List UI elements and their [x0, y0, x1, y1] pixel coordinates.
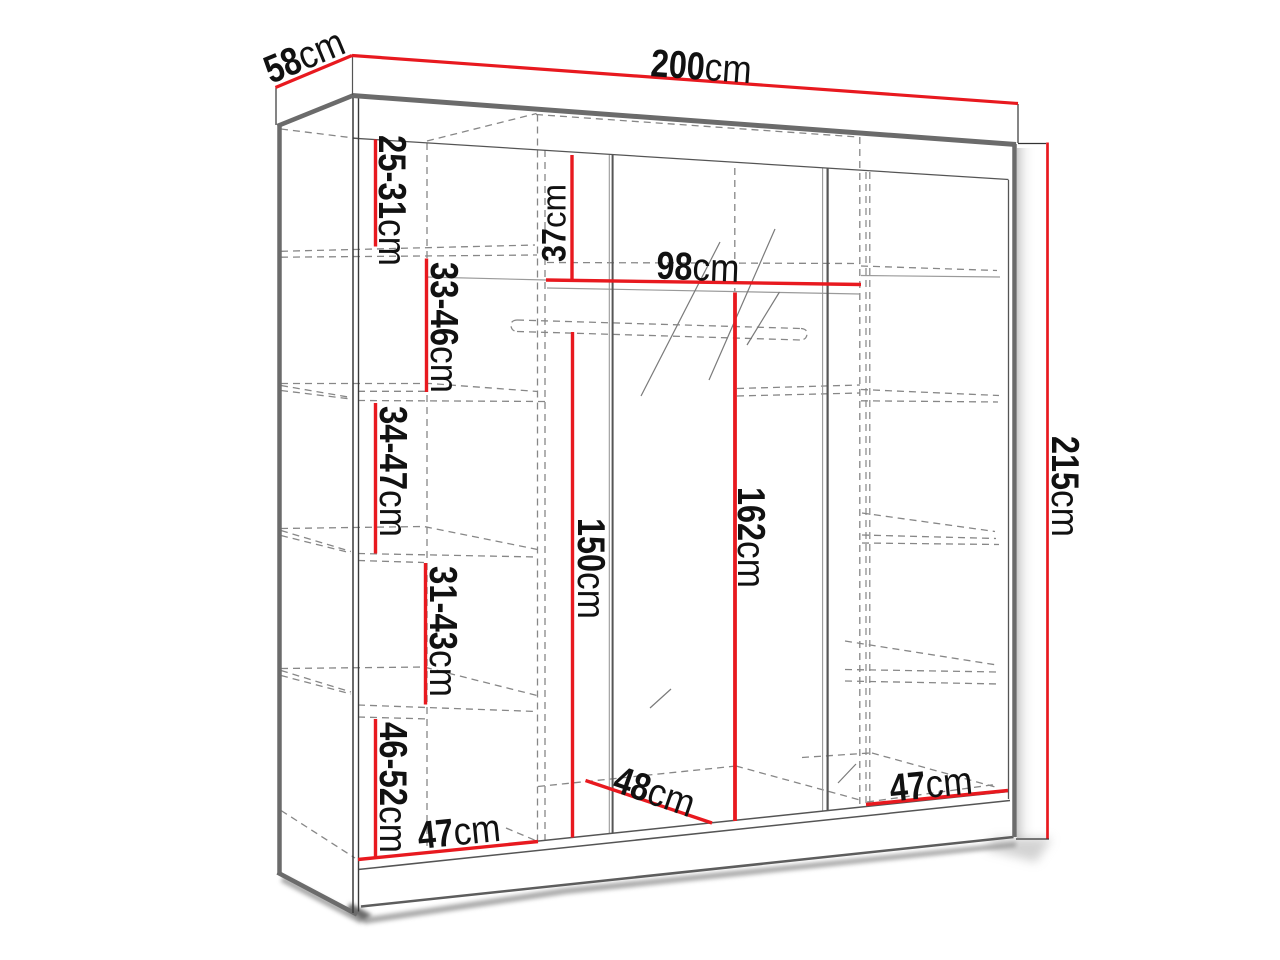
svg-text:200cm: 200cm	[649, 42, 753, 92]
svg-text:98cm: 98cm	[656, 245, 741, 291]
svg-text:46-52cm: 46-52cm	[371, 722, 414, 853]
svg-text:162cm: 162cm	[729, 487, 772, 588]
svg-text:37cm: 37cm	[536, 184, 574, 262]
svg-text:33-46cm: 33-46cm	[422, 262, 465, 393]
svg-text:31-43cm: 31-43cm	[421, 566, 464, 697]
svg-text:215cm: 215cm	[1043, 436, 1086, 537]
svg-text:47cm: 47cm	[416, 807, 503, 858]
svg-text:25-31cm: 25-31cm	[370, 135, 413, 266]
svg-text:47cm: 47cm	[888, 759, 975, 810]
svg-text:34-47cm: 34-47cm	[371, 406, 414, 537]
svg-text:150cm: 150cm	[569, 518, 612, 619]
